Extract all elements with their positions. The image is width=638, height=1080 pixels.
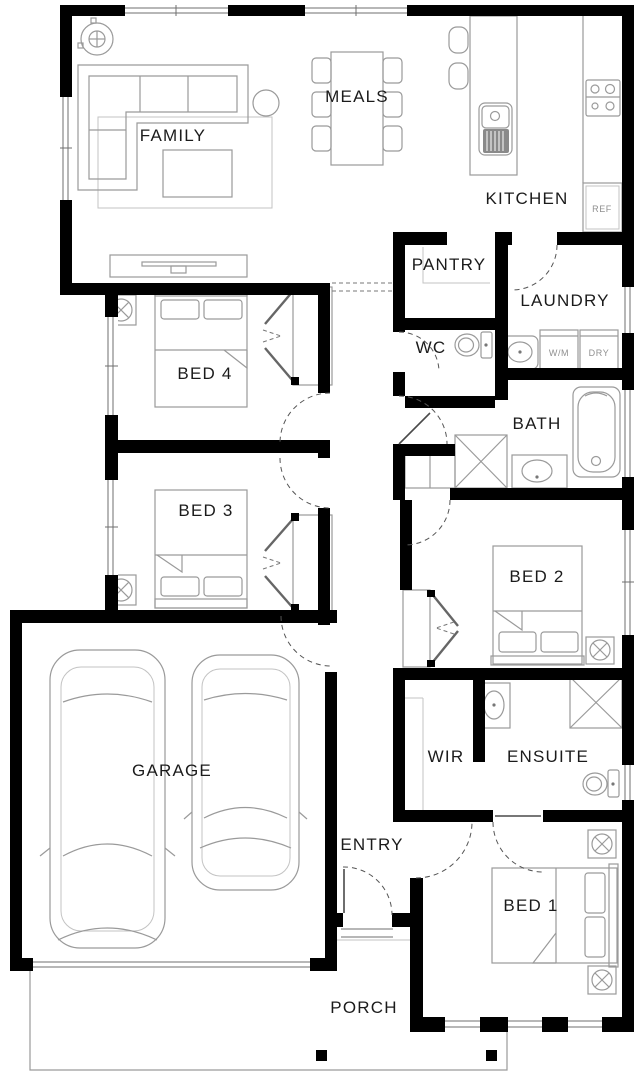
toilet-icon <box>455 332 492 358</box>
master-door-arc <box>416 822 472 878</box>
front-door-opening <box>341 913 393 937</box>
family-furniture <box>78 18 279 277</box>
meals-furniture <box>312 52 402 165</box>
tv-unit <box>110 255 247 277</box>
bed2-robe <box>403 590 458 667</box>
room-label-wir: WIR <box>428 747 465 766</box>
appliance-label-ref: REF <box>592 204 612 214</box>
porch-post <box>316 1050 327 1061</box>
window <box>622 390 634 477</box>
fan-icon <box>588 830 616 858</box>
appliance-label-wm: W/M <box>549 348 569 358</box>
room-label-kitchen: KITCHEN <box>485 189 568 208</box>
bed4-furniture <box>106 287 332 407</box>
shower-icon <box>455 435 507 488</box>
laundry-door-arc <box>512 245 557 290</box>
window <box>622 530 634 635</box>
room-label-bed2: BED 2 <box>509 567 564 586</box>
garage-cars <box>40 650 307 948</box>
room-label-entry: ENTRY <box>340 835 403 854</box>
floor-plan-canvas: FAMILY MEALS KITCHEN PANTRY LAUNDRY WC B… <box>0 0 638 1080</box>
window <box>105 480 118 575</box>
bed4-door-arc <box>280 393 330 443</box>
fan-icon <box>588 966 616 994</box>
garage-door <box>33 958 310 971</box>
window <box>622 765 634 800</box>
bed2-furniture <box>403 546 614 667</box>
wir-shelving <box>405 698 423 810</box>
room-label-bath: BATH <box>513 414 562 433</box>
stool <box>449 27 468 53</box>
toilet-icon <box>583 770 619 797</box>
sink-icon <box>479 103 512 155</box>
room-label-garage: GARAGE <box>132 761 212 780</box>
window <box>305 5 407 16</box>
light-icon <box>78 18 113 55</box>
appliance-label-dry: DRY <box>589 348 610 358</box>
room-labels: FAMILY MEALS KITCHEN PANTRY LAUNDRY WC B… <box>132 87 610 1017</box>
window <box>568 1017 602 1032</box>
room-label-ensuite: ENSUITE <box>507 747 589 766</box>
laundry-door <box>622 287 634 333</box>
window <box>60 97 72 200</box>
wc-fixtures <box>455 332 492 358</box>
cooktop-icon <box>586 80 620 116</box>
room-label-wc: WC <box>416 338 447 357</box>
room-label-pantry: PANTRY <box>412 255 487 274</box>
room-label-porch: PORCH <box>330 998 397 1017</box>
shower-icon <box>570 677 622 728</box>
bed3-door-arc <box>280 458 330 508</box>
ensuite-door-arc <box>493 822 543 872</box>
room-label-meals: MEALS <box>325 87 389 106</box>
bath-door-leaf <box>399 413 430 444</box>
linen-cupboard <box>405 452 455 488</box>
car <box>40 650 175 948</box>
porch-post <box>486 1050 497 1061</box>
window <box>105 317 118 415</box>
window <box>125 5 228 16</box>
room-label-laundry: LAUNDRY <box>520 291 609 310</box>
fan-icon <box>586 637 614 664</box>
room-label-bed4: BED 4 <box>177 364 232 383</box>
ensuite-fixtures <box>478 677 622 797</box>
room-label-family: FAMILY <box>140 126 206 145</box>
bathtub-icon <box>573 387 620 477</box>
stool <box>449 63 468 89</box>
room-label-bed1: BED 1 <box>503 896 558 915</box>
dining-table <box>331 52 383 165</box>
window <box>508 1017 542 1032</box>
window <box>445 1017 480 1032</box>
side-table <box>253 90 279 116</box>
coffee-table <box>163 150 232 197</box>
room-label-bed3: BED 3 <box>178 501 233 520</box>
vanity-icon <box>512 455 567 488</box>
front-door-arc <box>343 867 392 915</box>
